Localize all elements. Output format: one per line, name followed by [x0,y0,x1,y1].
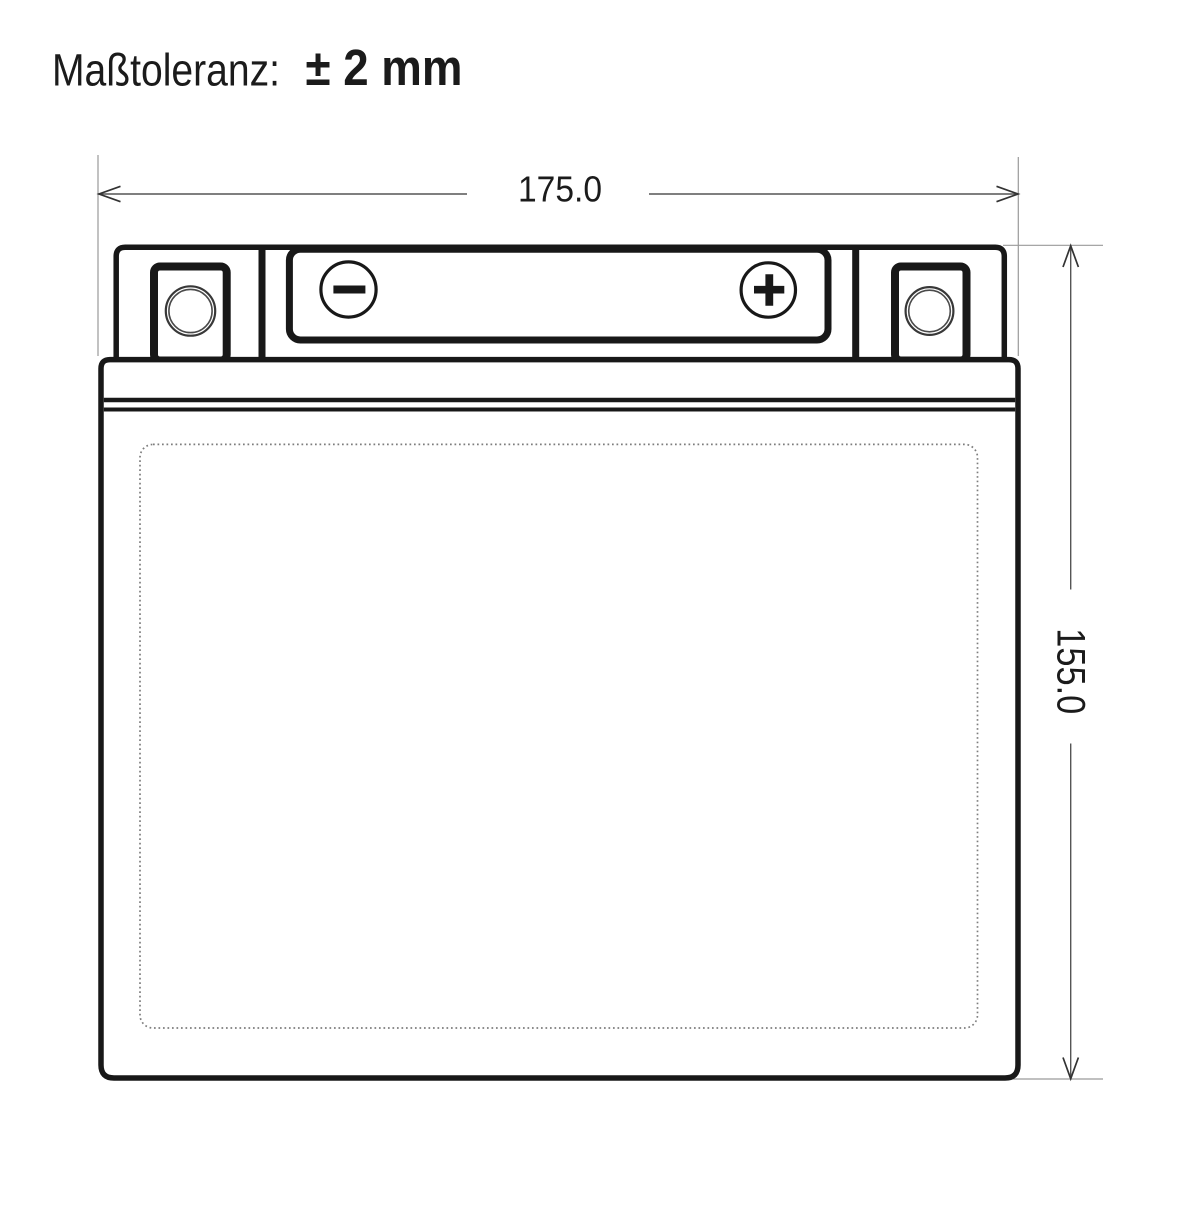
svg-text:155.0: 155.0 [1049,628,1093,714]
svg-text:175.0: 175.0 [518,168,602,209]
svg-text:± 2 mm: ± 2 mm [306,39,463,96]
svg-text:Maßtoleranz:: Maßtoleranz: [52,45,280,96]
